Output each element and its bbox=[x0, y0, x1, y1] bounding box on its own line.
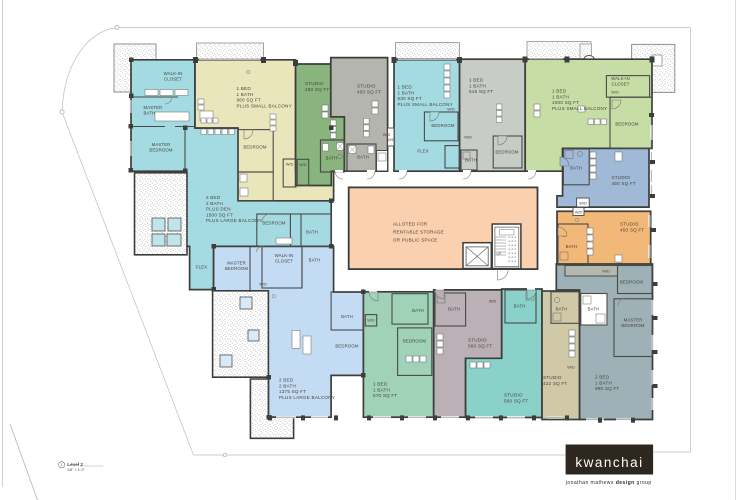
svg-text:1/8" = 1'-0": 1/8" = 1'-0" bbox=[67, 468, 85, 472]
svg-text:MASTER: MASTER bbox=[227, 261, 246, 266]
svg-text:BATH: BATH bbox=[570, 166, 582, 171]
svg-text:422 SQ FT: 422 SQ FT bbox=[543, 381, 567, 386]
svg-text:STUDIO: STUDIO bbox=[504, 393, 523, 398]
svg-text:1 BED: 1 BED bbox=[373, 382, 388, 387]
svg-text:MASTER: MASTER bbox=[144, 105, 163, 110]
svg-text:615 SQ FT: 615 SQ FT bbox=[469, 89, 493, 94]
svg-text:630 SQ FT: 630 SQ FT bbox=[398, 96, 422, 101]
svg-text:1375 SQ FT: 1375 SQ FT bbox=[279, 389, 306, 394]
svg-text:RENTABLE STORAGE: RENTABLE STORAGE bbox=[393, 230, 444, 235]
svg-text:BATH: BATH bbox=[144, 111, 156, 116]
svg-text:BATH: BATH bbox=[341, 314, 353, 319]
svg-text:PLUS LARGE BALCONY: PLUS LARGE BALCONY bbox=[206, 218, 262, 223]
svg-text:MASTER: MASTER bbox=[624, 318, 643, 323]
svg-text:1 BED: 1 BED bbox=[398, 85, 413, 90]
svg-text:PLUS SMALL BALCONY: PLUS SMALL BALCONY bbox=[398, 102, 453, 107]
svg-text:CLOSET: CLOSET bbox=[164, 77, 182, 82]
svg-text:WALK-IN: WALK-IN bbox=[275, 253, 294, 258]
svg-text:STUDIO: STUDIO bbox=[357, 84, 376, 89]
svg-text:W/D: W/D bbox=[611, 90, 619, 95]
svg-text:BEDROOM: BEDROOM bbox=[621, 323, 645, 328]
svg-text:PLUS SMALL BALCONY: PLUS SMALL BALCONY bbox=[552, 106, 607, 111]
svg-text:450 SQ FT: 450 SQ FT bbox=[357, 89, 381, 94]
svg-text:BATH: BATH bbox=[412, 308, 424, 313]
svg-text:BEDROOM: BEDROOM bbox=[335, 344, 359, 349]
svg-text:2 BATH: 2 BATH bbox=[279, 383, 296, 388]
svg-text:ALLOTED FOR: ALLOTED FOR bbox=[393, 222, 428, 227]
svg-text:BATH: BATH bbox=[556, 307, 568, 312]
svg-text:1 BATH: 1 BATH bbox=[552, 94, 569, 99]
svg-text:BEDROOM: BEDROOM bbox=[495, 150, 519, 155]
svg-text:W/D: W/D bbox=[567, 365, 575, 370]
svg-text:W/D: W/D bbox=[447, 107, 455, 112]
svg-text:1500 SQ FT: 1500 SQ FT bbox=[206, 212, 233, 217]
svg-text:UP: UP bbox=[497, 252, 502, 256]
svg-text:BATH: BATH bbox=[309, 258, 321, 263]
svg-text:STUDIO: STUDIO bbox=[612, 175, 631, 180]
svg-text:BATH: BATH bbox=[306, 230, 318, 235]
svg-text:1 BATH: 1 BATH bbox=[469, 83, 486, 88]
svg-text:FLEX: FLEX bbox=[417, 149, 428, 154]
svg-text:2 BATH: 2 BATH bbox=[206, 201, 223, 206]
svg-text:1 BATH: 1 BATH bbox=[595, 380, 612, 385]
svg-text:kwanchai: kwanchai bbox=[575, 455, 643, 470]
svg-text:Level 2: Level 2 bbox=[67, 462, 83, 467]
svg-text:W/D: W/D bbox=[286, 162, 294, 167]
svg-text:560 SQ FT: 560 SQ FT bbox=[504, 398, 528, 403]
svg-text:WALK-IN: WALK-IN bbox=[611, 76, 630, 81]
svg-text:BATH: BATH bbox=[588, 307, 600, 312]
svg-text:1: 1 bbox=[61, 463, 63, 467]
svg-text:W/D: W/D bbox=[387, 137, 395, 142]
svg-text:PLUS DEN: PLUS DEN bbox=[206, 207, 231, 212]
svg-text:PLUS LARGE BALCONY: PLUS LARGE BALCONY bbox=[279, 395, 335, 400]
svg-text:OR PUBLIC SPACE: OR PUBLIC SPACE bbox=[393, 238, 438, 243]
svg-text:450 SQ FT: 450 SQ FT bbox=[612, 181, 636, 186]
svg-text:W/D: W/D bbox=[259, 282, 267, 287]
svg-text:BEDROOM: BEDROOM bbox=[243, 145, 267, 150]
svg-text:2 BED: 2 BED bbox=[595, 375, 610, 380]
svg-text:BATH: BATH bbox=[566, 244, 578, 249]
svg-text:STUDIO: STUDIO bbox=[305, 81, 324, 86]
svg-text:BATH: BATH bbox=[326, 156, 338, 161]
svg-text:1 BATH: 1 BATH bbox=[373, 387, 390, 392]
svg-text:BATH: BATH bbox=[465, 158, 477, 163]
svg-text:BEDROOM: BEDROOM bbox=[262, 221, 286, 226]
svg-text:W/D: W/D bbox=[367, 318, 375, 323]
svg-text:BEDROOM: BEDROOM bbox=[225, 266, 249, 271]
svg-text:BEDROOM: BEDROOM bbox=[615, 122, 639, 127]
svg-text:BEDROOM: BEDROOM bbox=[620, 280, 644, 285]
svg-text:STUDIO: STUDIO bbox=[620, 222, 639, 227]
svg-text:BATH: BATH bbox=[514, 304, 526, 309]
svg-text:BEDROOM: BEDROOM bbox=[403, 339, 427, 344]
svg-text:STUDIO: STUDIO bbox=[543, 375, 562, 380]
svg-text:1 BED: 1 BED bbox=[552, 89, 567, 94]
svg-text:W/D: W/D bbox=[299, 162, 307, 167]
svg-text:BEDROOM: BEDROOM bbox=[431, 123, 455, 128]
svg-text:1 BED: 1 BED bbox=[469, 78, 484, 83]
svg-text:450 SQ FT: 450 SQ FT bbox=[620, 227, 644, 232]
svg-text:870 SQ FT: 870 SQ FT bbox=[373, 393, 397, 398]
svg-text:PLUS SMALL BALCONY: PLUS SMALL BALCONY bbox=[237, 103, 292, 108]
svg-text:1 BATH: 1 BATH bbox=[398, 90, 415, 95]
svg-text:W/D: W/D bbox=[489, 299, 497, 304]
svg-text:1000 SQ FT: 1000 SQ FT bbox=[552, 100, 579, 105]
svg-text:CLOSET: CLOSET bbox=[611, 82, 629, 87]
svg-text:560 SQ FT: 560 SQ FT bbox=[468, 343, 492, 348]
svg-text:480 SQ FT: 480 SQ FT bbox=[305, 87, 329, 92]
svg-text:990 SQ FT: 990 SQ FT bbox=[595, 386, 619, 391]
svg-text:STUDIO: STUDIO bbox=[468, 338, 487, 343]
svg-text:960 SQ FT: 960 SQ FT bbox=[237, 98, 261, 103]
svg-text:W/D: W/D bbox=[602, 269, 610, 274]
svg-text:CLOSET: CLOSET bbox=[275, 259, 293, 264]
svg-text:1 BED: 1 BED bbox=[237, 86, 252, 91]
svg-text:BATH: BATH bbox=[448, 307, 460, 312]
svg-text:1 BATH: 1 BATH bbox=[237, 92, 254, 97]
svg-text:W/D: W/D bbox=[575, 210, 583, 215]
svg-text:W/D: W/D bbox=[464, 135, 472, 140]
svg-text:MASTER: MASTER bbox=[152, 142, 171, 147]
svg-text:2 BED: 2 BED bbox=[279, 378, 294, 383]
svg-text:BEDROOM: BEDROOM bbox=[149, 148, 173, 153]
svg-text:WALK-IN: WALK-IN bbox=[164, 71, 183, 76]
svg-text:jonathan mathews design group: jonathan mathews design group bbox=[565, 480, 652, 486]
svg-text:FLEX: FLEX bbox=[196, 265, 207, 270]
svg-text:2 BED: 2 BED bbox=[206, 195, 221, 200]
svg-text:BATH: BATH bbox=[357, 155, 369, 160]
svg-text:W/D: W/D bbox=[579, 201, 587, 206]
